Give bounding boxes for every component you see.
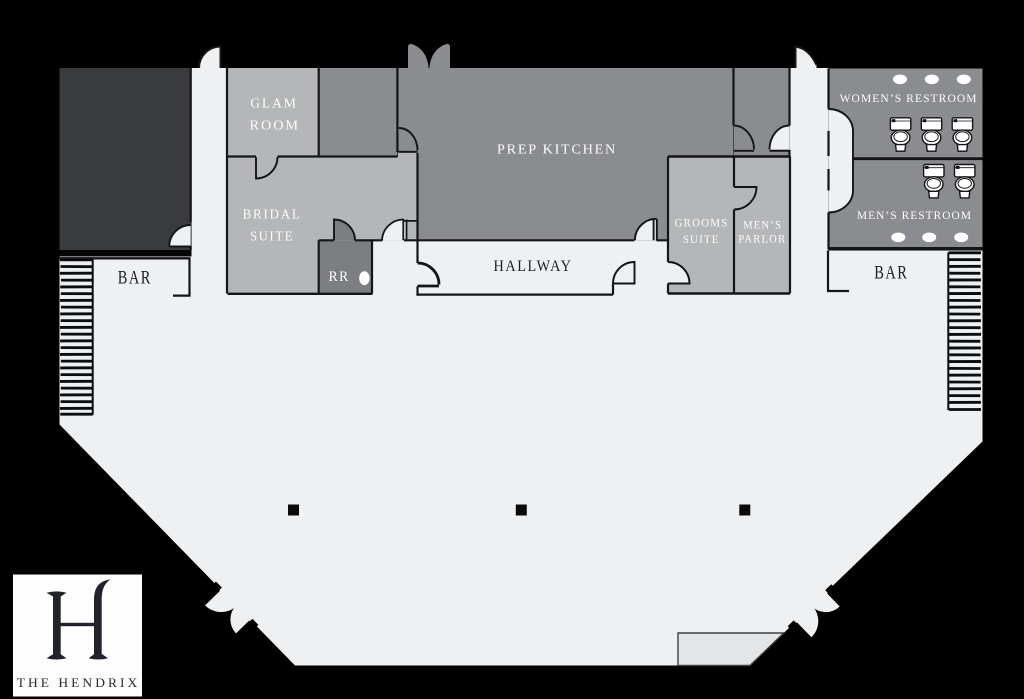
svg-text:WOMEN’S RESTROOM: WOMEN’S RESTROOM [840, 91, 978, 105]
svg-text:THE HENDRIX: THE HENDRIX [17, 675, 141, 690]
svg-text:MEN’S: MEN’S [743, 218, 782, 232]
svg-text:MEN’S RESTROOM: MEN’S RESTROOM [857, 208, 972, 222]
svg-text:PARLOR: PARLOR [738, 231, 786, 245]
svg-text:HALLWAY: HALLWAY [494, 258, 573, 275]
svg-text:SUITE: SUITE [250, 228, 294, 243]
svg-text:PREP KITCHEN: PREP KITCHEN [497, 141, 617, 156]
svg-text:BRIDAL: BRIDAL [243, 206, 302, 221]
svg-text:BAR: BAR [874, 262, 908, 283]
svg-text:GROOMS: GROOMS [675, 216, 729, 230]
svg-text:GLAM: GLAM [250, 96, 298, 111]
svg-text:ROOM: ROOM [250, 118, 301, 133]
svg-text:RR: RR [329, 269, 350, 285]
svg-text:BAR: BAR [118, 268, 152, 289]
svg-text:SUITE: SUITE [683, 232, 720, 246]
